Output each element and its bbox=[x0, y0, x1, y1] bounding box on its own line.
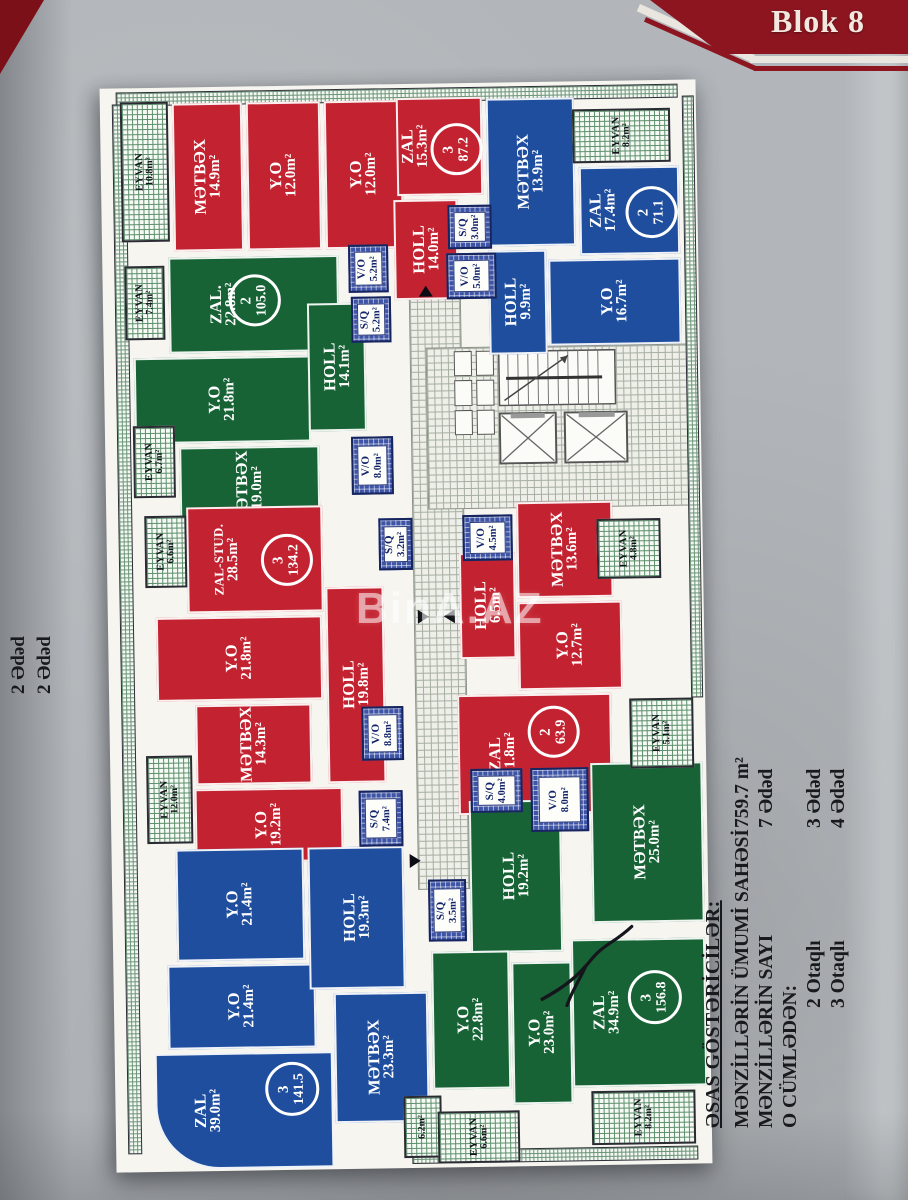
room-label: HOLL14.0m² bbox=[409, 225, 443, 274]
room-label: Y.O22.8m² bbox=[454, 998, 488, 1042]
wetroom-box: S/Q5.2m² bbox=[357, 303, 386, 336]
wetroom-box: S/Q3.2m² bbox=[383, 526, 408, 563]
room-area: 12.0m² bbox=[284, 154, 300, 197]
room-area: 5.1m² bbox=[662, 714, 673, 753]
legend-value: 4 Ədəd bbox=[828, 646, 850, 828]
room-label: S/Q3.0m² bbox=[458, 214, 481, 239]
room-label: V/O8.0m² bbox=[548, 787, 571, 812]
room-label: EYVAN4.8m² bbox=[618, 529, 640, 568]
block-banner: Blok 8 bbox=[608, 0, 908, 54]
wetroom-box: V/O8.0m² bbox=[357, 445, 388, 486]
room-label: S/Q4.0m² bbox=[485, 778, 508, 803]
room-name: V/O bbox=[476, 525, 488, 550]
balcony-eyvan: EYVAN10.8m² bbox=[120, 102, 170, 243]
room-area: 10.8m² bbox=[145, 153, 156, 192]
wetroom-v-o: V/O4.5m² bbox=[462, 514, 513, 561]
room-label: Y.O23.0m² bbox=[526, 1011, 560, 1055]
wetroom-v-o: V/O8.8m² bbox=[361, 706, 404, 761]
balcony-eyvan: EYVAN5.1m² bbox=[629, 697, 694, 768]
room-area: 8.0m² bbox=[373, 453, 384, 478]
wetroom-box: S/Q3.5m² bbox=[434, 888, 462, 932]
balcony-eyvan: EYVAN6.7m² bbox=[133, 426, 176, 499]
banner-stripe-horizontal-white bbox=[750, 56, 908, 63]
room-label: 3134.2 bbox=[271, 544, 302, 576]
wetroom-box: V/O8.0m² bbox=[538, 777, 581, 823]
room-label: MƏTBƏX13.9m² bbox=[514, 134, 548, 210]
room-label: MƏTBƏX23.3m² bbox=[365, 1019, 399, 1095]
legend-value: 3 Ədəd bbox=[804, 646, 826, 828]
wetroom-box: V/O5.2m² bbox=[354, 251, 383, 285]
room-name: S/Q bbox=[384, 532, 396, 557]
room-name: MƏTBƏX bbox=[237, 707, 255, 783]
room-y-o: Y.O21.8m² bbox=[156, 615, 323, 702]
wetroom-s-q: S/Q7.4m² bbox=[359, 790, 404, 847]
room-name: HOLL bbox=[339, 660, 357, 709]
room-label: Y.O16.7m² bbox=[598, 280, 632, 324]
room-area: 3.2m² bbox=[396, 531, 407, 556]
wetroom-s-q: S/Q3.0m² bbox=[447, 205, 492, 250]
room-area: 21.8m² bbox=[223, 378, 239, 421]
room-name: HOLL bbox=[340, 893, 358, 942]
photo-of-floorplan-poster: { "banner": { "title": "Blok 8" }, "wate… bbox=[0, 0, 908, 1200]
room-label: Y.O21.4m² bbox=[225, 985, 259, 1029]
legend-row: MƏNZİLLƏRİN SAYI7 Ədəd bbox=[756, 646, 778, 1128]
room-area: 71.1 bbox=[652, 200, 667, 225]
room-label: 387.2 bbox=[441, 137, 472, 162]
room-area: 3.0m² bbox=[470, 214, 481, 239]
room-name: MƏTBƏX bbox=[630, 804, 648, 880]
banner-stripe-horizontal-red bbox=[754, 66, 908, 71]
room-name: S/Q bbox=[458, 214, 470, 239]
legend-row: 3 Otaqlı4 Ədəd bbox=[828, 646, 850, 1128]
wetroom-box: S/Q3.0m² bbox=[454, 211, 486, 242]
room-name: MƏTBƏX bbox=[548, 512, 566, 588]
room-name: HOLL bbox=[501, 278, 519, 327]
room-metbex: MƏTBƏX13.9m² bbox=[486, 97, 576, 246]
room-label: MƏTBƏX14.9m² bbox=[191, 139, 225, 215]
legend-label: 3 Otaqlı bbox=[828, 828, 850, 1128]
room-area: 5.2m² bbox=[368, 256, 379, 281]
room-area: 13.6m² bbox=[565, 511, 582, 587]
room-label: EYVAN6.6m² bbox=[468, 1117, 490, 1156]
room-area: 17.4m² bbox=[604, 189, 620, 232]
room-name: S/Q bbox=[370, 806, 382, 831]
room-area: 4.0m² bbox=[497, 778, 508, 803]
room-area: 19.3m² bbox=[357, 893, 374, 942]
legend-title: ƏSAS GÖSTƏRİCİLƏR: bbox=[702, 646, 725, 1128]
room-label: EYVAN7.4m² bbox=[134, 284, 156, 323]
room-area: 8.2m² bbox=[621, 116, 632, 155]
room-area: 156.8 bbox=[655, 981, 670, 1013]
room-label: V/O5.2m² bbox=[357, 256, 380, 281]
room-label: HOLL14.1m² bbox=[320, 342, 354, 391]
room-label: Y.O12.7m² bbox=[553, 624, 587, 668]
room-label: 263.9 bbox=[538, 719, 569, 744]
room-label: HOLL9.9m² bbox=[501, 278, 535, 327]
balcony-area: 6.2m² bbox=[403, 1096, 442, 1159]
room-name: HOLL bbox=[320, 343, 338, 392]
room-area: 19.2m² bbox=[270, 803, 286, 846]
wetroom-s-q: S/Q4.0m² bbox=[470, 768, 523, 813]
legend-label: O CÜMLƏDƏN: bbox=[780, 828, 802, 1128]
room-name: 3 bbox=[277, 1073, 293, 1105]
room-label: ZAL-STUD.28.5m² bbox=[212, 524, 243, 596]
summary-legend: ƏSAS GÖSTƏRİCİLƏR: MƏNZİLLƏRİN ÜMUMİ SAH… bbox=[702, 646, 902, 1128]
room-name: V/O bbox=[548, 787, 560, 812]
room-label: ZAL39.0m² bbox=[192, 1089, 226, 1133]
room-area: 12.0m² bbox=[170, 780, 181, 819]
edge-note: 2 Ədəd2 Ədəd bbox=[6, 544, 64, 694]
storage-cells bbox=[454, 351, 495, 436]
room-area: 105.0 bbox=[255, 284, 270, 316]
balcony-eyvan: EYVAN7.4m² bbox=[124, 266, 165, 341]
staircase-icon bbox=[498, 349, 617, 407]
room-label: Y.O12.0m² bbox=[347, 153, 381, 197]
room-label: Y.O21.4m² bbox=[223, 883, 257, 927]
wetroom-s-q: S/Q3.5m² bbox=[428, 879, 467, 942]
room-name: 3 bbox=[271, 544, 287, 576]
room-area: 8.0m² bbox=[560, 787, 571, 812]
balcony-eyvan: EYVAN8.2m² bbox=[591, 1090, 696, 1146]
corner-ribbon bbox=[0, 0, 44, 74]
room-area: 12.0m² bbox=[364, 153, 380, 196]
room-y-o: Y.O16.7m² bbox=[548, 258, 681, 346]
room-area: 12.7m² bbox=[571, 624, 587, 667]
room-holl: HOLL19.3m² bbox=[307, 846, 405, 989]
room-y-o: Y.O21.4m² bbox=[175, 848, 305, 962]
room-name: 2 bbox=[636, 200, 652, 225]
room-area: 7.4m² bbox=[145, 284, 156, 323]
wetroom-s-q: S/Q5.2m² bbox=[351, 296, 392, 343]
room-area: 134.2 bbox=[287, 544, 302, 576]
pen-scribble bbox=[528, 918, 641, 1016]
legend-value: 759.7 m² bbox=[732, 646, 754, 828]
room-area: 6.6m² bbox=[479, 1117, 490, 1156]
room-label: V/O5.0m² bbox=[460, 263, 483, 288]
room-area: 8.8m² bbox=[383, 721, 394, 746]
room-area: 141.5 bbox=[293, 1073, 308, 1105]
room-label: 6.2m² bbox=[417, 1115, 428, 1139]
room-area: 4.8m² bbox=[629, 529, 640, 568]
room-area: 5.2m² bbox=[371, 307, 382, 332]
legend-value bbox=[780, 646, 802, 828]
room-area: 6.2m² bbox=[417, 1115, 428, 1139]
room-label: S/Q3.5m² bbox=[436, 898, 459, 923]
elevator-shafts-icon bbox=[499, 410, 630, 464]
wetroom-v-o: V/O8.0m² bbox=[530, 767, 589, 832]
legend-rows: MƏNZİLLƏRİN ÜMUMİ SAHƏSİ759.7 m²MƏNZİLLƏ… bbox=[732, 646, 850, 1128]
room-area: 14.3m² bbox=[254, 706, 271, 782]
room-label: 3141.5 bbox=[277, 1073, 308, 1105]
room-area: 19.8m² bbox=[356, 660, 373, 709]
room-label: EYVAN8.2m² bbox=[633, 1098, 655, 1137]
balcony-eyvan: EYVAN4.8m² bbox=[596, 518, 661, 579]
room-name: V/O bbox=[371, 721, 383, 746]
room-area: 21.4m² bbox=[241, 883, 257, 926]
room-area: 3.5m² bbox=[448, 898, 459, 923]
room-name: S/Q bbox=[436, 898, 448, 923]
room-label: HOLL19.3m² bbox=[340, 893, 374, 942]
room-label: V/O4.5m² bbox=[476, 525, 499, 550]
wetroom-v-o: V/O5.2m² bbox=[348, 244, 389, 293]
legend-row: O CÜMLƏDƏN: bbox=[780, 646, 802, 1128]
room-area: 7.4m² bbox=[381, 806, 392, 831]
room-label: S/Q3.2m² bbox=[384, 531, 407, 556]
direction-arrow-right bbox=[410, 854, 421, 868]
room-label: Y.O21.8m² bbox=[206, 378, 240, 422]
room-name: 3 bbox=[441, 137, 457, 162]
room-label: S/Q7.4m² bbox=[370, 806, 393, 831]
block-title: Blok 8 bbox=[728, 3, 908, 40]
edge-note-line: 2 Ədəd bbox=[32, 544, 58, 694]
room-label: EYVAN12.0m² bbox=[159, 780, 181, 819]
facade-strip-left bbox=[112, 104, 142, 1154]
room-name: V/O bbox=[357, 256, 369, 281]
room-label: Y.O12.0m² bbox=[267, 154, 301, 198]
room-area: 39.0m² bbox=[209, 1089, 225, 1132]
room-area: 5.0m² bbox=[472, 263, 483, 288]
room-area: 8.2m² bbox=[644, 1098, 655, 1137]
room-area: 23.3m² bbox=[382, 1019, 399, 1095]
watermark: BinA.AZ bbox=[356, 584, 544, 634]
room-area: 87.2 bbox=[457, 137, 472, 162]
room-label: HOLL19.8m² bbox=[339, 660, 373, 709]
room-area: 28.5m² bbox=[225, 524, 242, 596]
room-area: 63.9 bbox=[554, 719, 569, 744]
room-area: 13.9m² bbox=[531, 134, 548, 210]
room-y-o: Y.O22.8m² bbox=[431, 950, 511, 1089]
room-label: HOLL19.2m² bbox=[499, 852, 533, 901]
room-name: MƏTBƏX bbox=[191, 139, 209, 215]
room-name: V/O bbox=[460, 263, 472, 288]
room-area: 21.8m² bbox=[240, 637, 256, 680]
room-area: 14.0m² bbox=[426, 225, 443, 274]
wetroom-s-q: S/Q3.2m² bbox=[378, 518, 413, 571]
room-label: V/O8.0m² bbox=[361, 453, 384, 478]
wetroom-box: V/O8.8m² bbox=[367, 714, 398, 752]
room-area: 23.0m² bbox=[543, 1011, 559, 1054]
room-area: 19.2m² bbox=[516, 852, 533, 901]
room-area: 14.1m² bbox=[337, 342, 354, 391]
room-label: EYVAN6.7m² bbox=[143, 443, 165, 482]
room-label: S/Q5.2m² bbox=[360, 307, 383, 332]
room-name: S/Q bbox=[360, 307, 372, 332]
balcony-eyvan: EYVAN6.6m² bbox=[438, 1110, 521, 1163]
room-label: MƏTBƏX13.6m² bbox=[548, 511, 582, 587]
room-y-o: Y.O12.0m² bbox=[246, 101, 322, 250]
room-area: 22.8m² bbox=[472, 998, 488, 1041]
legend-label: MƏNZİLLƏRİN ÜMUMİ SAHƏSİ bbox=[732, 828, 754, 1128]
room-y-o: Y.O21.4m² bbox=[167, 963, 316, 1049]
room-area: 21.4m² bbox=[242, 985, 258, 1028]
edge-note-line: 2 Ədəd bbox=[6, 544, 32, 694]
room-metbex: MƏTBƏX14.9m² bbox=[172, 103, 244, 252]
room-name: HOLL bbox=[499, 852, 517, 901]
room-name: S/Q bbox=[485, 778, 497, 803]
room-label: 3156.8 bbox=[639, 981, 670, 1013]
room-label: Y.O21.8m² bbox=[223, 637, 257, 681]
room-name: MƏTBƏX bbox=[514, 134, 532, 210]
room-holl: HOLL9.9m² bbox=[488, 250, 548, 355]
room-name: 3 bbox=[639, 981, 655, 1013]
room-area: 25.0m² bbox=[648, 804, 665, 880]
legend-label: 2 Otaqlı bbox=[804, 828, 826, 1128]
wetroom-box: S/Q7.4m² bbox=[365, 798, 397, 838]
room-name: 2 bbox=[239, 285, 255, 317]
room-metbex: MƏTBƏX14.3m² bbox=[195, 703, 312, 785]
room-area: 4.5m² bbox=[488, 525, 499, 550]
room-area: 9.9m² bbox=[518, 278, 535, 327]
room-label: 271.1 bbox=[636, 200, 667, 225]
room-area: 6.6m² bbox=[166, 532, 177, 571]
room-label: V/O8.8m² bbox=[371, 721, 394, 746]
balcony-eyvan: EYVAN6.6m² bbox=[144, 515, 187, 588]
room-area: 6.7m² bbox=[154, 443, 165, 482]
room-label: MƏTBƏX14.3m² bbox=[237, 706, 271, 782]
legend-value: 7 Ədəd bbox=[756, 646, 778, 828]
room-label: 2105.0 bbox=[239, 284, 270, 316]
wetroom-box: V/O5.0m² bbox=[453, 260, 490, 293]
room-label: MƏTBƏX25.0m² bbox=[630, 804, 664, 880]
room-label: Y.O19.2m² bbox=[252, 803, 286, 847]
room-name: 2 bbox=[538, 719, 554, 744]
room-name: HOLL bbox=[409, 225, 427, 274]
room-y-o: Y.O12.0m² bbox=[324, 100, 404, 249]
legend-row: 2 Otaqlı3 Ədəd bbox=[804, 646, 826, 1128]
room-name: MƏTBƏX bbox=[365, 1020, 383, 1096]
room-label: ZAL17.4m² bbox=[587, 189, 621, 233]
room-metbex: MƏTBƏX25.0m² bbox=[590, 761, 704, 923]
wetroom-box: S/Q4.0m² bbox=[478, 775, 516, 806]
wetroom-box: V/O4.5m² bbox=[469, 521, 506, 554]
room-label: EYVAN10.8m² bbox=[134, 153, 156, 192]
legend-row: MƏNZİLLƏRİN ÜMUMİ SAHƏSİ759.7 m² bbox=[732, 646, 754, 1128]
room-label: EYVAN6.6m² bbox=[155, 532, 177, 571]
wetroom-v-o: V/O8.0m² bbox=[351, 436, 394, 495]
direction-arrow-up bbox=[419, 286, 433, 297]
room-area: 16.7m² bbox=[615, 280, 631, 323]
room-area: 14.9m² bbox=[208, 139, 225, 215]
room-label: ZAL15.3m² bbox=[399, 125, 433, 169]
wetroom-v-o: V/O5.0m² bbox=[446, 253, 497, 300]
room-label: EYVAN5.1m² bbox=[651, 714, 673, 753]
balcony-eyvan: EYVAN12.0m² bbox=[146, 755, 193, 844]
legend-label: MƏNZİLLƏRİN SAYI bbox=[756, 828, 778, 1128]
room-name: V/O bbox=[361, 453, 373, 478]
room-label: EYVAN8.2m² bbox=[610, 116, 632, 155]
balcony-eyvan: EYVAN8.2m² bbox=[572, 108, 671, 164]
